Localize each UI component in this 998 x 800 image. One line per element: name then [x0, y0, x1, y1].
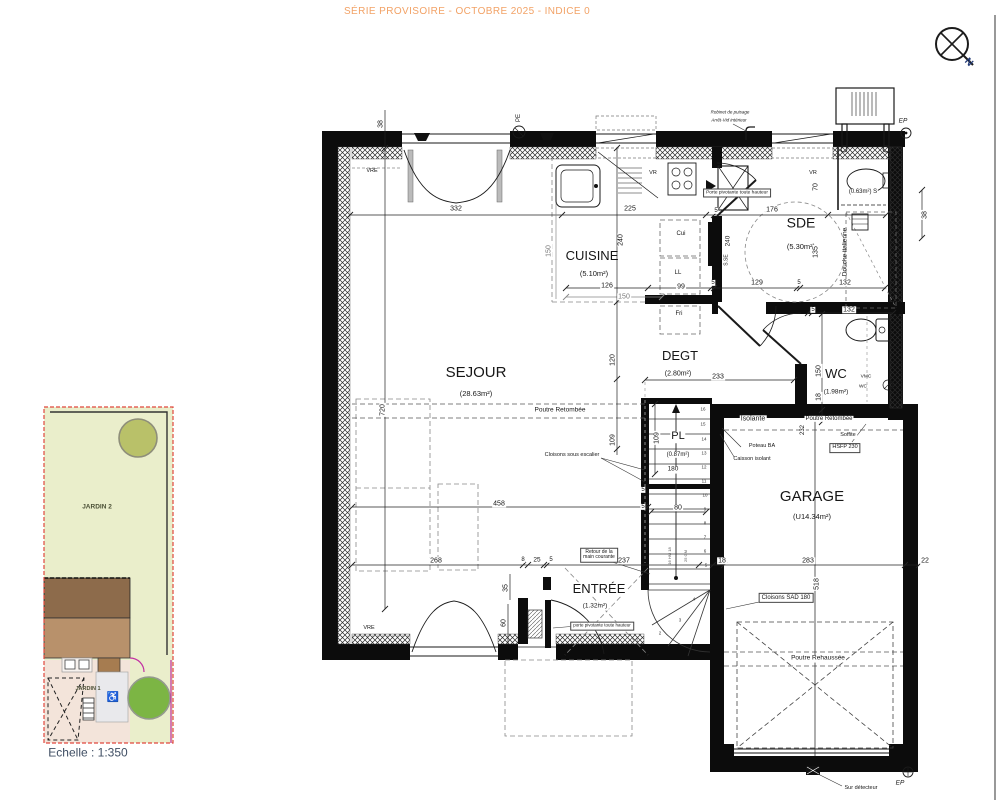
door-note: Porte pivotante toute hauteur	[703, 188, 771, 197]
dim: 150	[617, 293, 631, 300]
tap-note: Arrêt-Vid intérieur	[711, 119, 746, 124]
dim: 237	[617, 557, 631, 564]
dim: 132	[842, 306, 856, 313]
dim: 5	[796, 280, 801, 286]
dim: 99	[676, 283, 686, 290]
soffite-ref: HSFP 230	[829, 443, 860, 453]
scale-label: Echelle : 1:350	[48, 747, 127, 760]
windows	[402, 116, 833, 660]
dim: 8	[520, 557, 525, 563]
dim: 38	[921, 210, 928, 220]
stair-step: 16	[700, 408, 705, 413]
cloisons-escalier-label: Cloisons sous escalier	[544, 453, 601, 459]
dim: 180	[667, 467, 680, 474]
dim: 126	[600, 282, 614, 289]
jardin1-label: JARDIN 1	[75, 687, 100, 693]
page-title: SÉRIE PROVISOIRE - OCTOBRE 2025 - INDICE…	[344, 7, 590, 18]
beam-label: Poutre Retombée	[534, 408, 587, 415]
dim: 135	[812, 245, 819, 259]
handrail-note-line2: main courante	[583, 555, 615, 560]
dim: 60	[500, 618, 507, 628]
stair-step: 6	[704, 550, 707, 555]
dim: 150	[815, 364, 822, 378]
vmc-label: WC	[859, 384, 867, 389]
stair-note: 25 GM	[684, 550, 688, 562]
dim: 22	[920, 557, 930, 564]
stair-step: 15	[700, 423, 705, 428]
stair-step: 11	[702, 480, 707, 485]
wheelchair-icon: ♿	[107, 693, 119, 704]
dim: 225	[623, 205, 637, 212]
ep-label: EP	[896, 781, 905, 788]
dim: 38	[377, 119, 384, 129]
dim: 240	[726, 235, 733, 248]
detector-label: Sur détecteur	[844, 786, 877, 792]
stair-step: 1	[636, 639, 639, 644]
stair-step: 9	[704, 508, 707, 513]
jardin2-label: JARDIN 2	[82, 505, 112, 512]
stair-step: 13	[701, 452, 706, 457]
vr-label: VR	[648, 171, 658, 177]
stair-note: 16 HM 18	[668, 547, 672, 564]
dim: 233	[711, 373, 725, 380]
room-degt-area: (2.80m²)	[665, 370, 691, 377]
dim: 129	[750, 279, 764, 286]
stair-step: 8	[704, 522, 707, 527]
dim: 25	[532, 558, 541, 565]
fixtures	[414, 88, 913, 777]
dim: 176	[765, 206, 779, 213]
beam-label: Poutre Retombée	[804, 416, 853, 422]
room-pl-area: (0.87m²)	[666, 452, 691, 458]
dim: 35	[502, 583, 509, 593]
cloisons-sad-label: Cloisons SAD 180	[759, 593, 814, 603]
dim: 120	[609, 353, 616, 367]
dim: 5	[640, 487, 645, 493]
stair-step: 4	[693, 598, 696, 603]
stair-step: 5	[705, 564, 708, 569]
dim: 70	[812, 182, 819, 192]
dim: 18	[717, 557, 727, 564]
towel-dryer-label: S.SE	[724, 253, 729, 266]
dim: 232	[800, 424, 806, 436]
room-sde-area: (5.30m²)	[787, 243, 815, 251]
room-entree: ENTRÉE	[572, 582, 627, 596]
site-stairs-icon	[83, 698, 94, 720]
stair-step: 10	[702, 494, 707, 499]
garage-door-sill	[734, 749, 890, 753]
plan-drawing	[0, 0, 998, 800]
tree-icon	[119, 419, 157, 457]
dim: 109	[653, 431, 660, 445]
room-wc: WC	[825, 367, 847, 381]
vre-label: VRE	[365, 169, 378, 175]
room-cuisine-area: (5.10m²)	[580, 270, 608, 278]
room-sde: SDE	[787, 216, 816, 231]
dim: 720	[379, 403, 386, 417]
floor-plan-page: SÉRIE PROVISOIRE - OCTOBRE 2025 - INDICE…	[0, 0, 998, 800]
dim: 5	[548, 557, 553, 563]
handrail-note: Retour de la main courante	[580, 548, 618, 563]
door-note: porte pivotante toute hauteur	[570, 622, 634, 631]
appliance-ll: LL	[674, 270, 683, 276]
tap-note: Robinet de puisage	[711, 111, 750, 116]
soffite-label: Soffite	[839, 433, 857, 439]
dim: 132	[838, 279, 852, 286]
room-garage-area: (U14.34m²)	[793, 513, 831, 521]
room-entree-area: (1.32m²)	[582, 604, 609, 611]
dim: 518	[813, 577, 820, 591]
room-sejour: SEJOUR	[446, 365, 507, 381]
caisson-label: Caisson isolant	[732, 457, 771, 463]
stair-step: 3	[679, 619, 682, 624]
ep-label: EP	[899, 119, 908, 126]
appliance-cui: Cui	[675, 231, 686, 237]
dim: 5	[640, 504, 645, 510]
stair-step: 7	[704, 536, 707, 541]
dim: 268	[429, 557, 443, 564]
shower-label: Douche italienne	[843, 228, 850, 276]
dim: 283	[801, 557, 815, 564]
poteau-label: Poteau BA	[748, 444, 776, 450]
dim: 5	[710, 280, 715, 286]
vmc-label: VMC	[861, 374, 872, 379]
dim: 240	[617, 233, 624, 247]
dim: 332	[449, 205, 463, 212]
vr-label: VR	[808, 171, 818, 177]
room-cuisine: CUISINE	[566, 249, 619, 263]
beam-label: Poutre Rehaussée	[790, 656, 846, 663]
entry-closet	[528, 610, 542, 638]
room-wc-area: (1.98m²)	[824, 390, 849, 397]
tree-icon	[128, 677, 170, 719]
dim: 150	[545, 244, 552, 258]
dim: 5	[810, 307, 815, 313]
dim: 18	[815, 392, 822, 402]
room-degt: DEGT	[662, 349, 698, 363]
pe-label: PE	[516, 114, 522, 122]
dim: 80	[673, 504, 683, 511]
closet-s-label: (0.63m²) S	[848, 189, 878, 195]
stair-step: 2	[659, 632, 662, 637]
dim: 109	[609, 433, 616, 447]
vre-label: VRE	[362, 626, 375, 632]
dim: 458	[492, 500, 506, 507]
appliance-fri: Fri	[675, 311, 684, 317]
stair-step: 14	[701, 438, 706, 443]
room-sejour-area: (28.63m²)	[460, 390, 493, 398]
room-pl: PL	[670, 431, 685, 443]
isolante-label: Isolante	[740, 415, 767, 422]
room-garage: GARAGE	[780, 489, 844, 505]
dim: 5	[713, 208, 718, 214]
stair-step: 12	[701, 466, 706, 471]
